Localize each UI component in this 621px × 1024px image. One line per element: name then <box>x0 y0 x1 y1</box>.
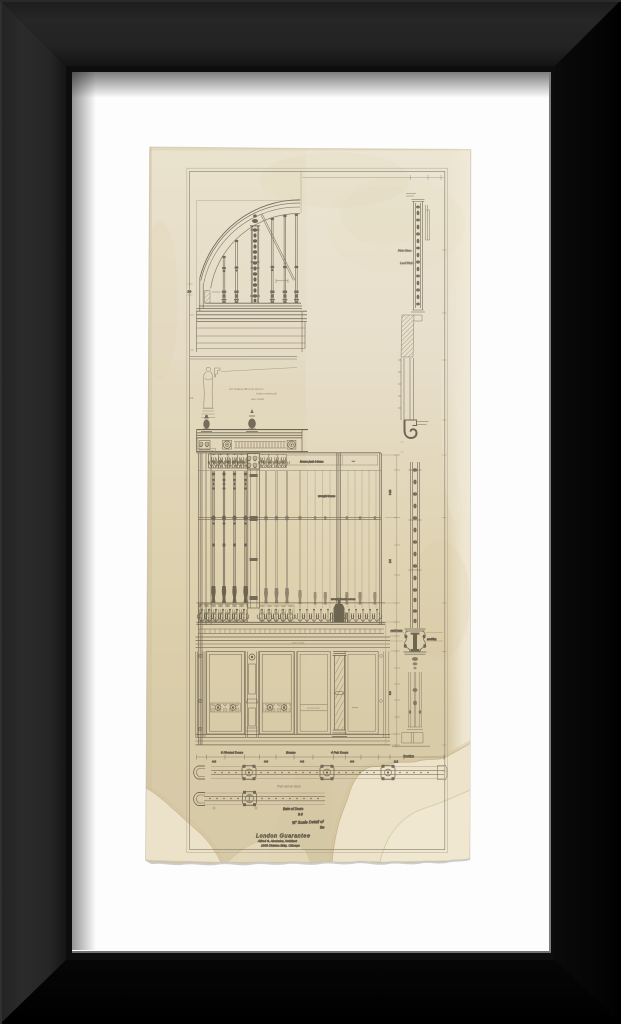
svg-text:1936 Division Bldg. Chicago: 1936 Division Bldg. Chicago <box>261 844 300 848</box>
svg-text:wrought bronze: wrought bronze <box>318 495 336 498</box>
svg-text:push plate: push plate <box>291 641 305 645</box>
svg-text:see sheet: see sheet <box>251 397 264 401</box>
svg-text:2-6: 2-6 <box>388 559 392 563</box>
svg-text:4-0: 4-0 <box>300 760 304 764</box>
svg-text:2-0: 2-0 <box>188 290 192 294</box>
svg-text:Lead Work: Lead Work <box>400 261 413 265</box>
svg-text:(main entrance): (main entrance) <box>256 392 277 396</box>
svg-text:Plan above base: Plan above base <box>277 785 301 789</box>
svg-text:Section: Section <box>403 755 414 759</box>
svg-text:Bronze: Bronze <box>286 751 296 755</box>
svg-text:Art Gallery Bronze Doors: Art Gallery Bronze Doors <box>228 387 264 391</box>
svg-text:3-6: 3-6 <box>298 813 303 817</box>
svg-text:8 Pivoted Doors: 8 Pivoted Doors <box>221 751 243 755</box>
svg-text:4-0: 4-0 <box>350 760 354 764</box>
svg-text:4-0: 4-0 <box>189 396 194 400</box>
svg-text:—: — <box>352 459 355 463</box>
svg-text:4-0: 4-0 <box>264 760 268 764</box>
svg-text:bronze door: bronze door <box>307 707 321 710</box>
svg-text:Plate Glass: Plate Glass <box>398 249 412 253</box>
svg-text:wrought bronze screen: wrought bronze screen <box>331 598 356 601</box>
svg-text:the: the <box>320 826 325 830</box>
svg-text:4 Pair Doors: 4 Pair Doors <box>331 751 349 755</box>
svg-text:4-0: 4-0 <box>212 760 216 764</box>
svg-text:moulding: moulding <box>427 639 437 641</box>
svg-text:6-8: 6-8 <box>388 691 392 695</box>
svg-text:Bronze jamb & frame: Bronze jamb & frame <box>300 461 324 464</box>
svg-text:Alfred S. Alschuler, Architect: Alfred S. Alschuler, Architect <box>257 839 297 843</box>
svg-text:2-2: 2-2 <box>394 760 398 764</box>
svg-text:Base of Doors: Base of Doors <box>283 807 304 811</box>
svg-text:3-10: 3-10 <box>388 489 392 495</box>
